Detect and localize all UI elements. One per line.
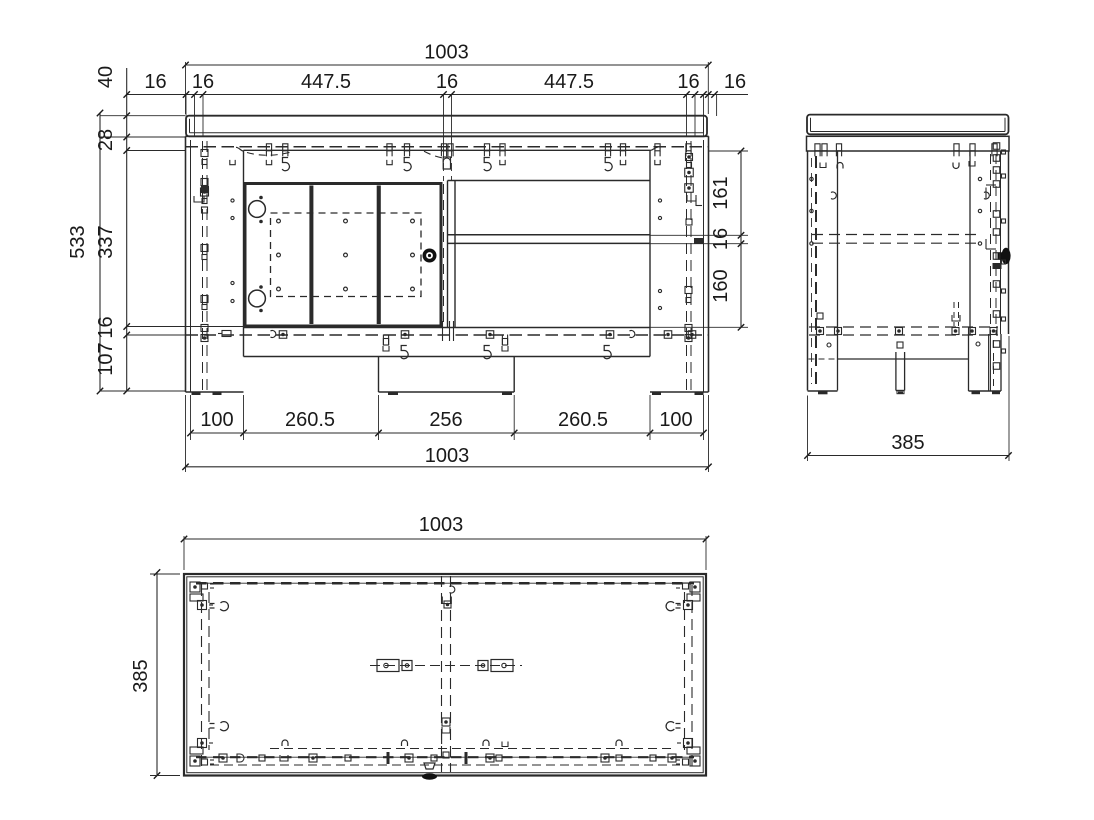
svg-text:385: 385 — [891, 432, 924, 454]
svg-text:447.5: 447.5 — [301, 71, 351, 93]
svg-text:1003: 1003 — [425, 445, 470, 467]
svg-text:107: 107 — [95, 342, 117, 375]
svg-text:16: 16 — [192, 71, 214, 93]
svg-text:16: 16 — [144, 71, 166, 93]
svg-text:40: 40 — [95, 66, 117, 88]
svg-text:16: 16 — [724, 71, 746, 93]
svg-text:161: 161 — [710, 176, 732, 209]
svg-text:100: 100 — [200, 409, 233, 431]
svg-text:533: 533 — [67, 225, 89, 258]
svg-text:337: 337 — [95, 225, 117, 258]
svg-text:1003: 1003 — [419, 514, 464, 536]
svg-text:28: 28 — [95, 129, 117, 151]
svg-text:100: 100 — [659, 409, 692, 431]
svg-text:16: 16 — [677, 71, 699, 93]
svg-text:16: 16 — [436, 71, 458, 93]
svg-text:385: 385 — [130, 659, 152, 692]
svg-text:260.5: 260.5 — [285, 409, 335, 431]
svg-text:16: 16 — [95, 316, 117, 338]
svg-text:1003: 1003 — [424, 42, 469, 64]
svg-text:160: 160 — [710, 269, 732, 302]
svg-text:16: 16 — [710, 228, 732, 250]
svg-text:256: 256 — [429, 409, 462, 431]
svg-text:447.5: 447.5 — [544, 71, 594, 93]
svg-text:260.5: 260.5 — [558, 409, 608, 431]
